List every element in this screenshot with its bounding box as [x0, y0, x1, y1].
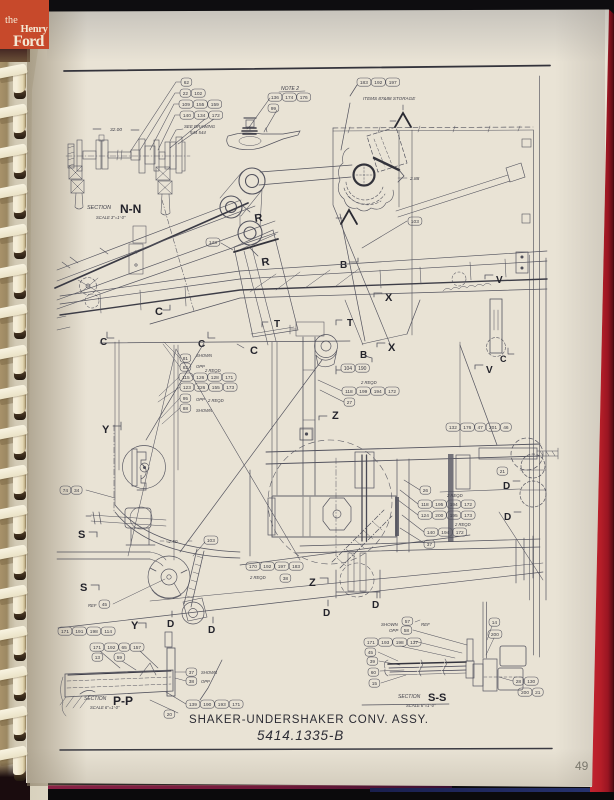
svg-text:183: 183	[292, 564, 300, 570]
svg-text:ITEMS 87&88 STORAGE: ITEMS 87&88 STORAGE	[363, 96, 416, 101]
svg-text:199: 199	[359, 389, 367, 395]
svg-text:2 REQD: 2 REQD	[360, 380, 377, 385]
svg-text:132: 132	[449, 425, 457, 431]
svg-text:197: 197	[278, 564, 286, 570]
svg-text:5414.1335-B: 5414.1335-B	[257, 728, 344, 743]
svg-text:102: 102	[194, 91, 202, 97]
svg-text:172: 172	[388, 389, 396, 395]
svg-text:S: S	[80, 582, 87, 594]
svg-text:45: 45	[102, 602, 108, 608]
svg-text:198: 198	[396, 640, 404, 646]
svg-text:22: 22	[183, 91, 189, 97]
svg-text:B: B	[340, 260, 347, 271]
svg-text:Z: Z	[332, 410, 339, 422]
svg-text:C: C	[155, 306, 163, 318]
svg-text:118: 118	[421, 502, 429, 508]
svg-text:≈2.50: ≈2.50	[166, 539, 178, 544]
svg-text:SHOWN: SHOWN	[196, 353, 213, 358]
svg-text:SEE DRAWING: SEE DRAWING	[184, 124, 216, 129]
svg-text:139: 139	[189, 702, 197, 708]
svg-text:OPP: OPP	[389, 628, 398, 633]
svg-text:26: 26	[423, 488, 429, 494]
svg-text:SHAKER-UNDERSHAKER CONV. ASSY: SHAKER-UNDERSHAKER CONV. ASSY.	[189, 714, 429, 726]
svg-text:193: 193	[381, 640, 389, 646]
svg-text:200: 200	[435, 513, 443, 519]
svg-text:N-N: N-N	[120, 202, 141, 216]
svg-text:191: 191	[75, 629, 83, 635]
svg-text:115: 115	[182, 375, 190, 381]
svg-text:SECTION: SECTION	[398, 694, 421, 700]
svg-text:37: 37	[427, 542, 433, 548]
svg-text:200: 200	[491, 632, 499, 638]
svg-text:27: 27	[347, 400, 353, 406]
svg-text:20: 20	[167, 712, 173, 718]
svg-text:SHOWN: SHOWN	[381, 622, 399, 627]
svg-text:173: 173	[226, 385, 234, 391]
svg-text:Z: Z	[309, 577, 316, 589]
svg-text:88: 88	[183, 406, 189, 412]
svg-text:173: 173	[464, 513, 472, 519]
svg-text:OPP: OPP	[196, 364, 205, 369]
svg-text:C: C	[198, 339, 205, 350]
svg-text:190: 190	[358, 366, 367, 372]
svg-text:192: 192	[263, 564, 271, 570]
svg-text:174: 174	[285, 95, 293, 101]
svg-text:114: 114	[104, 629, 112, 635]
svg-text:28: 28	[516, 679, 522, 685]
svg-text:195: 195	[450, 513, 458, 519]
svg-text:109: 109	[182, 102, 190, 108]
svg-text:126: 126	[196, 375, 204, 381]
svg-text:49: 49	[575, 759, 589, 773]
svg-text:65: 65	[122, 645, 128, 651]
svg-text:171: 171	[61, 629, 69, 635]
svg-text:2 REQD: 2 REQD	[249, 575, 266, 580]
svg-text:171: 171	[232, 702, 240, 708]
svg-text:21: 21	[500, 469, 506, 475]
svg-text:172: 172	[464, 502, 472, 508]
svg-text:B: B	[360, 350, 367, 361]
svg-text:14: 14	[492, 620, 498, 626]
svg-text:176: 176	[300, 95, 308, 101]
svg-text:38: 38	[283, 576, 289, 582]
svg-text:81: 81	[183, 356, 189, 362]
svg-text:192: 192	[107, 645, 115, 651]
svg-text:103: 103	[411, 219, 419, 225]
svg-text:REF: REF	[88, 603, 97, 608]
svg-text:197: 197	[389, 80, 397, 86]
svg-text:140: 140	[427, 530, 435, 536]
svg-text:171: 171	[225, 375, 233, 381]
svg-text:2 REQD: 2 REQD	[204, 368, 221, 373]
svg-text:134: 134	[197, 113, 205, 119]
svg-text:130: 130	[527, 679, 535, 685]
svg-text:136: 136	[271, 95, 279, 101]
svg-text:R: R	[261, 256, 271, 269]
svg-text:Y: Y	[131, 620, 139, 632]
svg-text:58: 58	[404, 628, 410, 634]
svg-text:194: 194	[374, 389, 382, 395]
svg-text:15: 15	[372, 681, 378, 687]
svg-text:171: 171	[367, 640, 375, 646]
svg-text:R: R	[254, 212, 264, 225]
svg-text:OPP: OPP	[201, 679, 210, 684]
svg-text:V: V	[486, 365, 493, 376]
svg-text:193: 193	[218, 702, 226, 708]
svg-text:544 544: 544 544	[190, 130, 206, 135]
svg-text:95: 95	[183, 396, 189, 402]
svg-text:OPP: OPP	[196, 397, 205, 402]
svg-text:39: 39	[370, 659, 376, 665]
svg-text:103: 103	[207, 538, 215, 544]
svg-text:SCALE 6″=1′-0″: SCALE 6″=1′-0″	[90, 705, 120, 710]
svg-text:C: C	[250, 345, 258, 357]
svg-text:172: 172	[212, 113, 220, 119]
svg-text:D: D	[372, 600, 379, 611]
svg-text:104: 104	[344, 366, 353, 372]
svg-text:118: 118	[345, 389, 353, 395]
svg-text:REF: REF	[421, 622, 430, 627]
svg-text:140: 140	[183, 113, 191, 119]
svg-text:X: X	[388, 342, 396, 354]
svg-text:159: 159	[211, 102, 219, 108]
svg-text:S: S	[78, 529, 85, 541]
svg-text:SCALE 6″=1′-0″: SCALE 6″=1′-0″	[406, 703, 436, 708]
svg-text:D: D	[208, 625, 215, 636]
svg-text:183: 183	[360, 80, 368, 86]
svg-text:SCALE 3″=1′-0″: SCALE 3″=1′-0″	[96, 215, 126, 220]
svg-text:200: 200	[521, 690, 529, 696]
svg-text:32.00: 32.00	[110, 127, 122, 133]
svg-text:SHOWN: SHOWN	[196, 408, 213, 413]
svg-text:57: 57	[405, 619, 411, 625]
svg-text:172: 172	[456, 530, 464, 536]
svg-text:34: 34	[74, 488, 80, 494]
svg-text:Y: Y	[102, 424, 110, 436]
svg-text:59: 59	[117, 655, 123, 661]
svg-text:176: 176	[463, 425, 471, 431]
svg-text:74: 74	[63, 488, 69, 494]
svg-text:128: 128	[211, 375, 219, 381]
svg-text:D: D	[503, 481, 510, 492]
svg-text:2.88: 2.88	[409, 176, 420, 182]
svg-text:T: T	[347, 318, 353, 329]
svg-text:V: V	[496, 275, 503, 286]
svg-text:47: 47	[478, 425, 484, 431]
svg-text:D: D	[167, 619, 174, 630]
svg-text:194: 194	[441, 530, 449, 536]
svg-text:155: 155	[212, 385, 220, 391]
svg-text:2 REQD: 2 REQD	[454, 522, 471, 527]
svg-text:T: T	[274, 319, 280, 330]
svg-text:190: 190	[203, 702, 211, 708]
svg-text:62: 62	[184, 80, 190, 86]
svg-text:13: 13	[95, 655, 101, 661]
svg-text:C: C	[100, 337, 107, 348]
svg-text:192: 192	[374, 80, 382, 86]
svg-text:194: 194	[450, 502, 458, 508]
svg-text:C: C	[500, 354, 507, 364]
svg-text:46: 46	[503, 425, 509, 431]
svg-text:SECTION: SECTION	[84, 696, 107, 702]
svg-text:124: 124	[421, 513, 429, 519]
svg-text:45: 45	[368, 650, 374, 656]
svg-text:123: 123	[183, 385, 191, 391]
svg-text:99: 99	[271, 106, 277, 112]
svg-text:38: 38	[189, 679, 195, 685]
svg-text:198: 198	[90, 629, 98, 635]
svg-text:170: 170	[249, 564, 257, 570]
svg-text:226: 226	[197, 385, 205, 391]
svg-text:21: 21	[535, 690, 541, 696]
svg-text:60: 60	[371, 670, 377, 676]
svg-text:171: 171	[93, 645, 101, 651]
svg-text:157: 157	[133, 645, 141, 651]
svg-text:37: 37	[189, 670, 195, 676]
svg-text:D: D	[323, 608, 330, 619]
svg-text:195: 195	[435, 502, 443, 508]
svg-text:155: 155	[196, 102, 204, 108]
svg-text:2 REQD: 2 REQD	[207, 398, 224, 403]
svg-text:X: X	[385, 292, 393, 304]
svg-text:2 REQD: 2 REQD	[446, 493, 463, 498]
svg-text:82: 82	[183, 365, 189, 371]
svg-text:SECTION: SECTION	[87, 205, 111, 211]
